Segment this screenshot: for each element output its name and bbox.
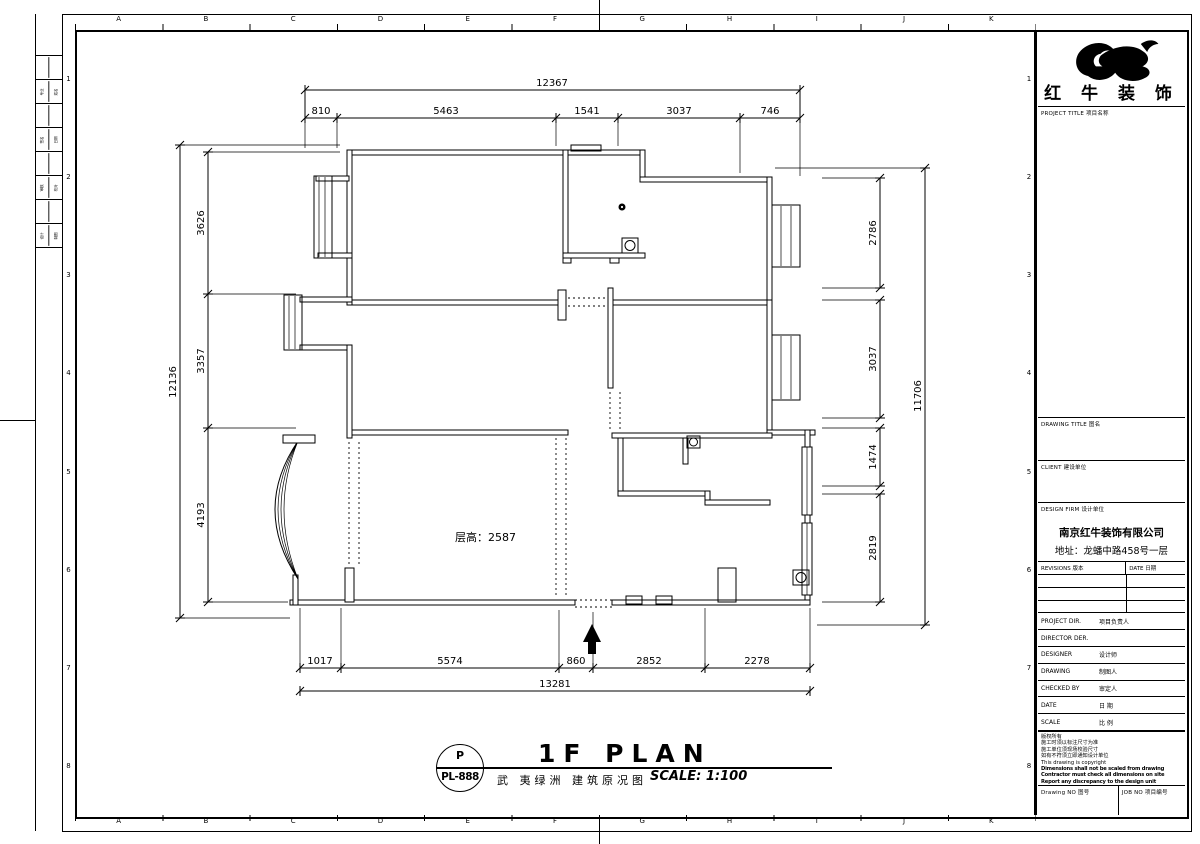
- design-firm-section: DESIGN FIRM 设计单位 南京红牛装饰有限公司 地址：龙蟠中路458号一…: [1038, 503, 1185, 562]
- fold-cell: 日期: [50, 129, 61, 150]
- dim-bottom-total: 13281: [539, 679, 571, 690]
- svg-text:1474: 1474: [868, 444, 879, 469]
- design-firm-address: 地址：龙蟠中路458号一层: [1038, 543, 1185, 557]
- fold-cell: 姓名: [50, 81, 61, 102]
- fold-strip-boxes: 专业姓名 签名日期 审核校对 设计制图: [36, 55, 62, 248]
- drawing-code-bubble: P PL-888: [436, 744, 484, 792]
- project-title-label: PROJECT TITLE 项目名称: [1041, 109, 1109, 117]
- fold-cell: 专业: [37, 81, 49, 102]
- personnel-row: DESIGNER设计师: [1038, 647, 1185, 664]
- svg-text:1017: 1017: [307, 656, 332, 667]
- center-mark-left: [0, 420, 35, 421]
- grid-number: 2: [63, 128, 74, 226]
- title-block: 红 牛 装 饰 PROJECT TITLE 项目名称 DRAWING TITLE…: [1038, 30, 1185, 815]
- svg-text:5574: 5574: [437, 656, 462, 667]
- revision-date-label: DATE 日期: [1126, 562, 1185, 574]
- svg-text:3037: 3037: [868, 346, 879, 371]
- entry-arrow-icon: [583, 624, 601, 654]
- design-firm-label: DESIGN FIRM 设计单位: [1041, 505, 1104, 513]
- grid-numbers-left: 1 2 3 4 5 6 7 8: [63, 30, 74, 815]
- svg-text:2786: 2786: [868, 220, 879, 245]
- grid-number: 5: [63, 423, 74, 521]
- note-line: Contractor must check all dimensions on …: [1041, 772, 1185, 778]
- fold-cell: 审核: [37, 177, 49, 198]
- personnel-row: SCALE比 例: [1038, 714, 1185, 731]
- redbull-logo-icon: [1060, 36, 1164, 84]
- svg-text:3037: 3037: [666, 106, 691, 117]
- svg-text:2278: 2278: [744, 656, 769, 667]
- svg-text:2819: 2819: [868, 535, 879, 560]
- client-label: CLIENT 建设单位: [1041, 463, 1086, 471]
- windows: [275, 145, 812, 595]
- svg-text:4193: 4193: [196, 502, 207, 527]
- plan-scale: SCALE: 1:100: [650, 769, 747, 784]
- column: [718, 568, 736, 602]
- brand-name: 红 牛 装 饰: [1044, 84, 1179, 104]
- revisions-header: REVISIONS 版本 DATE 日期: [1038, 562, 1185, 575]
- grid-number: 6: [63, 521, 74, 619]
- revision-row: [1038, 575, 1185, 588]
- svg-text:2852: 2852: [636, 656, 661, 667]
- floor-height-label: 层高：2587: [455, 530, 516, 544]
- grid-number: 8: [63, 717, 74, 815]
- svg-text:3357: 3357: [196, 348, 207, 373]
- grid-number: 3: [63, 226, 74, 324]
- revisions-label: REVISIONS 版本: [1038, 562, 1126, 574]
- drawing-code-top: P: [456, 745, 464, 766]
- client-section: CLIENT 建设单位: [1038, 461, 1185, 502]
- logo-section: 红 牛 装 饰: [1038, 30, 1185, 107]
- floor-plan: 12367 810 5463 1541 3037 746 1017 5574 8…: [75, 30, 1035, 815]
- dotted-openings: [349, 298, 620, 607]
- svg-text:746: 746: [760, 106, 779, 117]
- dim-right-total: 11706: [913, 380, 924, 412]
- svg-text:1541: 1541: [574, 106, 599, 117]
- dim-left-total: 12136: [168, 366, 179, 398]
- plan-subtitle: 武 夷绿洲 建筑原况图: [497, 772, 647, 788]
- grid-number: 7: [63, 619, 74, 717]
- svg-text:5463: 5463: [433, 106, 458, 117]
- revision-row: [1038, 588, 1185, 601]
- grid-number: 4: [63, 324, 74, 422]
- personnel-row: DIRECTOR DER.: [1038, 630, 1185, 647]
- personnel-row: DRAWING制图人: [1038, 664, 1185, 681]
- drawing-sheet: A B C D E F G H I J K A B C D E F G H I …: [0, 0, 1200, 844]
- svg-text:810: 810: [311, 106, 330, 117]
- dim-top-total: 12367: [536, 78, 568, 89]
- grid-number: 1: [63, 30, 74, 128]
- note-line: Report any discrepancy to the design uni…: [1041, 779, 1185, 785]
- design-firm-name: 南京红牛装饰有限公司: [1038, 525, 1185, 540]
- drawing-title-section: DRAWING TITLE 图名: [1038, 418, 1185, 461]
- svg-text:3626: 3626: [196, 210, 207, 235]
- fold-strip: 专业姓名 签名日期 审核校对 设计制图: [35, 14, 63, 831]
- personnel-row: PROJECT DIR.项目负责人: [1038, 613, 1185, 630]
- revision-row: [1038, 601, 1185, 614]
- fold-cell: 校对: [50, 177, 61, 198]
- fold-cell: 设计: [37, 225, 49, 246]
- drawing-no-label: Drawing NO 图号: [1041, 788, 1089, 796]
- fold-cell: 制图: [50, 225, 61, 246]
- grid-ticks-bottom: [75, 815, 1036, 821]
- notes-section: 版权所有 施工时须以标注尺寸为准 施工单位须现场校验尺寸 如有不符须立即通知设计…: [1038, 731, 1185, 786]
- project-title-section: PROJECT TITLE 项目名称: [1038, 107, 1185, 418]
- walls: [290, 150, 815, 605]
- personnel-row: CHECKED BY审定人: [1038, 681, 1185, 698]
- plan-title: 1F PLAN: [538, 739, 712, 768]
- drawing-title-label: DRAWING TITLE 图名: [1041, 420, 1100, 428]
- personnel-row: DATE日 期: [1038, 697, 1185, 714]
- drawing-code: PL-888: [441, 766, 479, 788]
- svg-text:860: 860: [566, 656, 585, 667]
- fold-cell: 签名: [37, 129, 49, 150]
- drawing-number-section: Drawing NO 图号 JOB NO 项目编号: [1038, 786, 1185, 815]
- job-no-label: JOB NO 项目编号: [1122, 788, 1168, 796]
